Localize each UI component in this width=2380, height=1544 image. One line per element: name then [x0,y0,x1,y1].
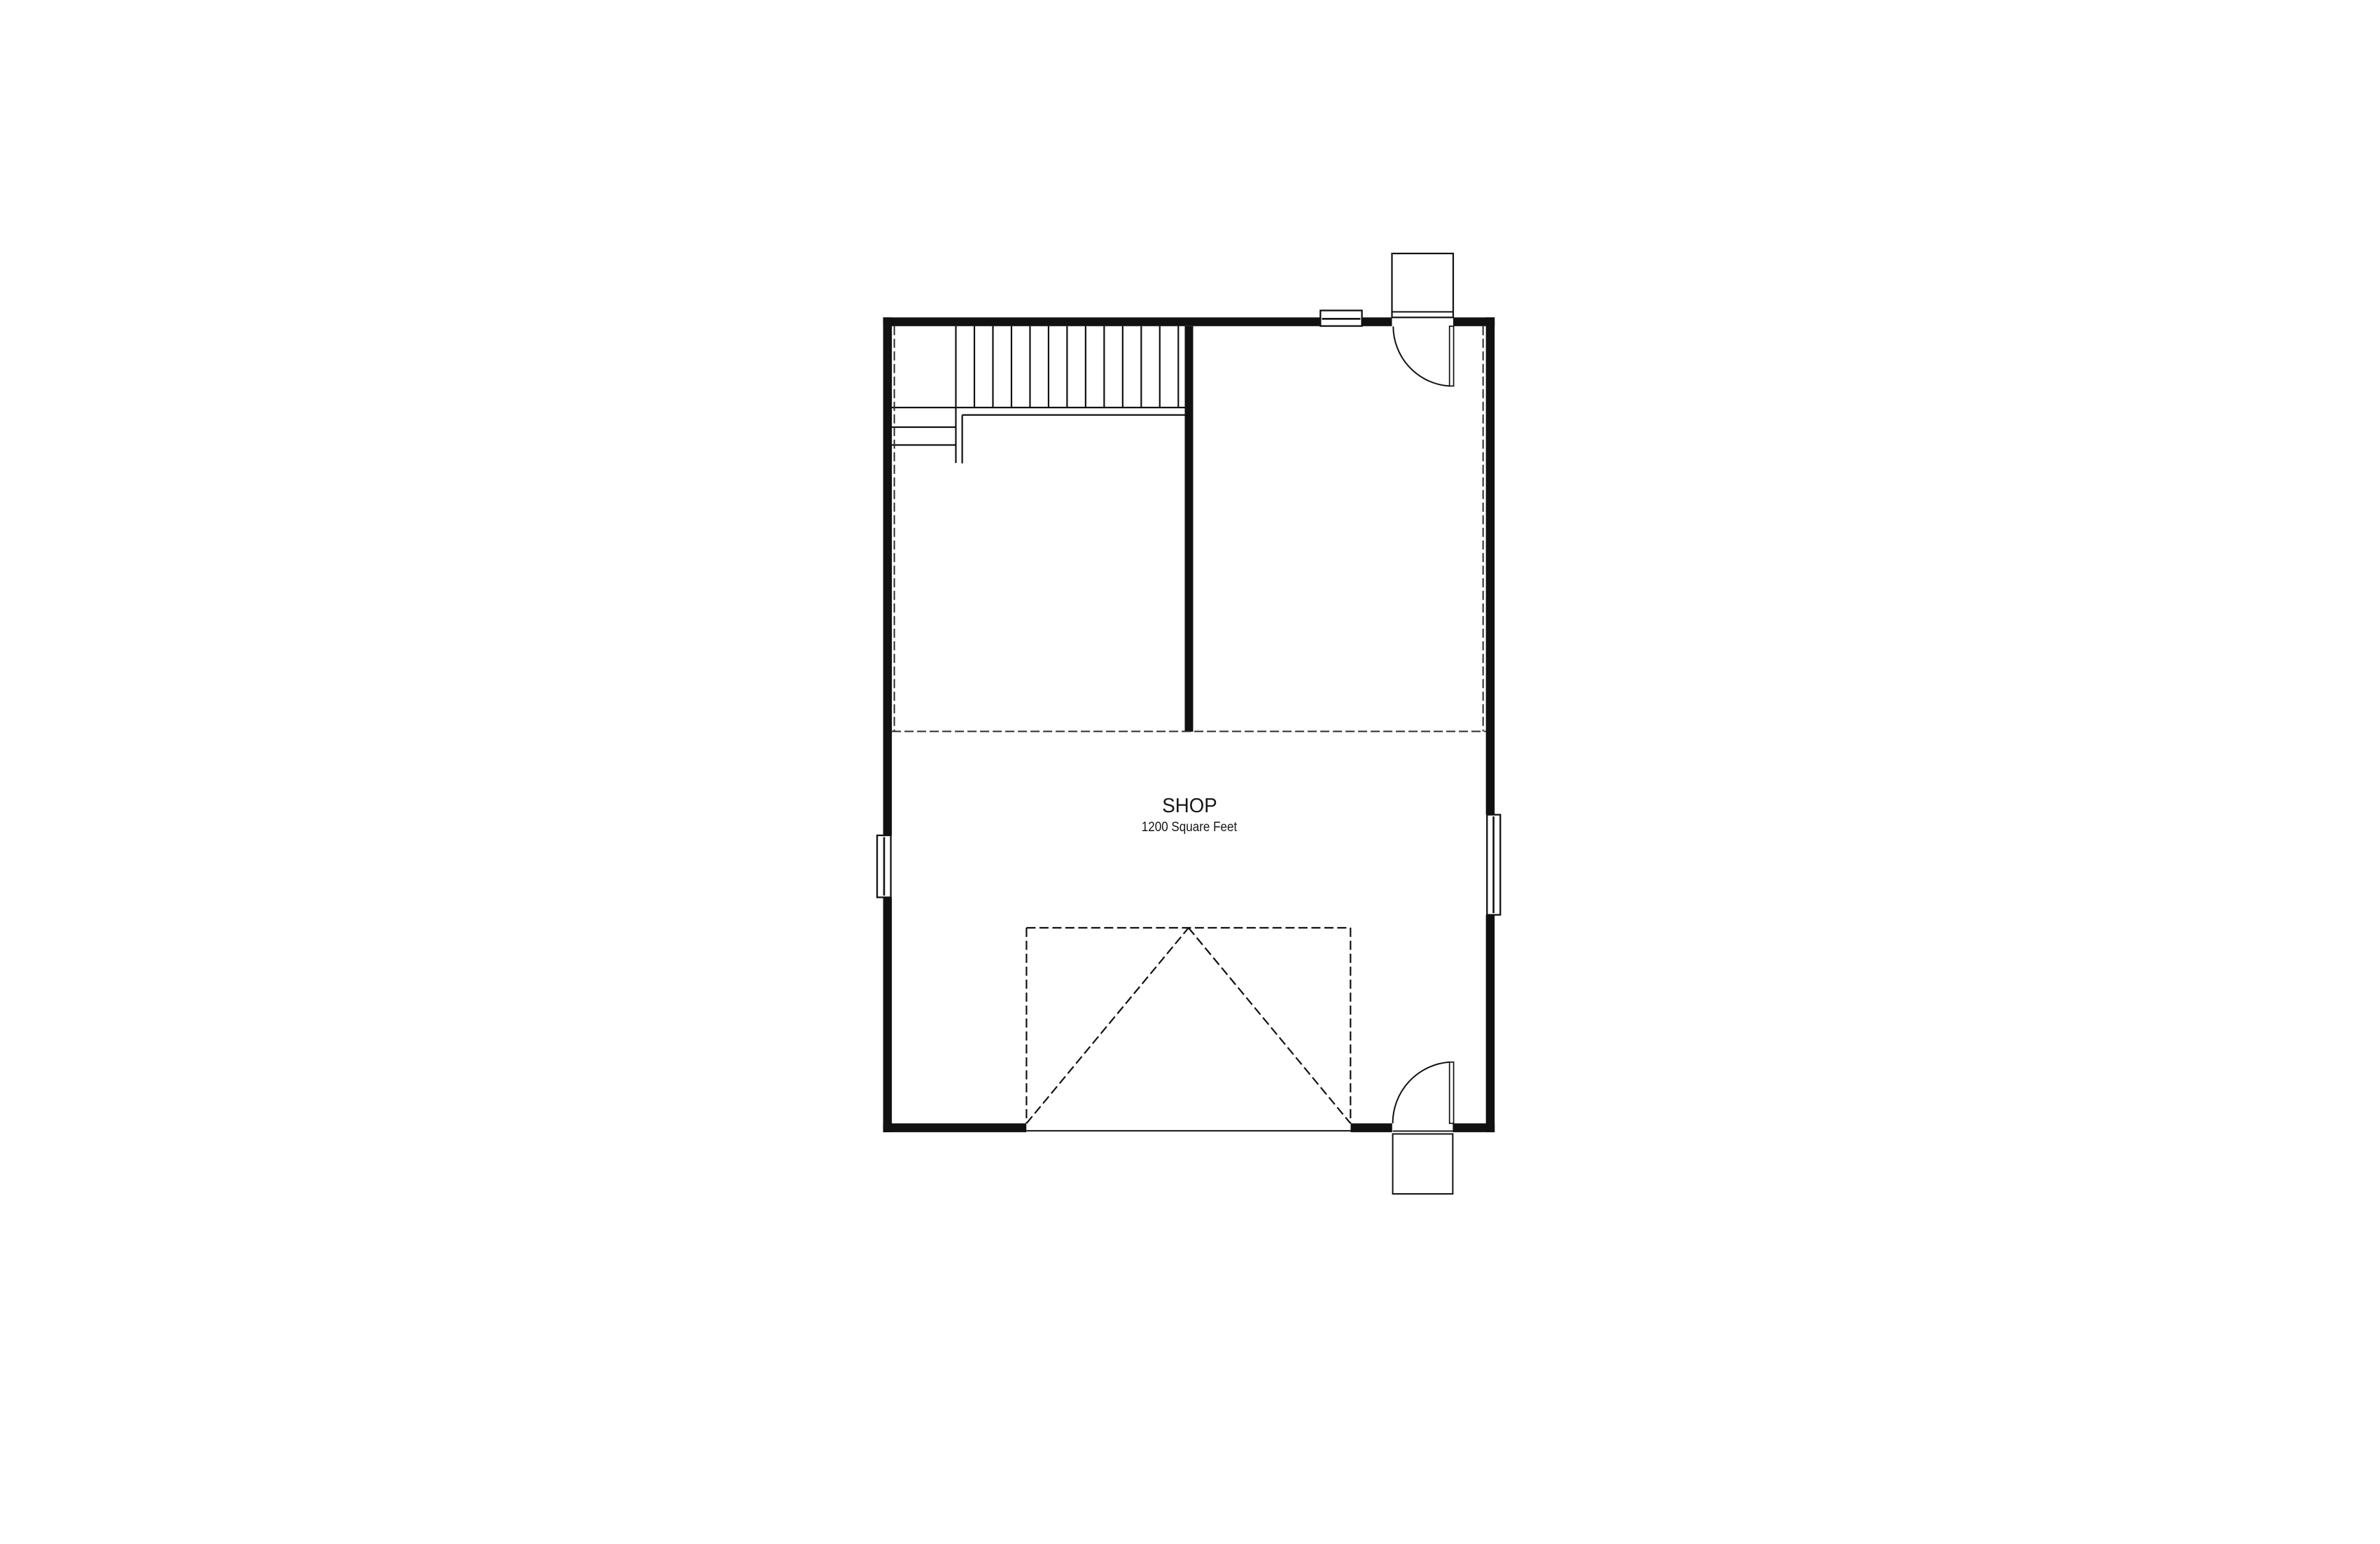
svg-text:1200 Square Feet: 1200 Square Feet [1142,820,1238,835]
svg-text:SHOP: SHOP [1162,795,1217,817]
